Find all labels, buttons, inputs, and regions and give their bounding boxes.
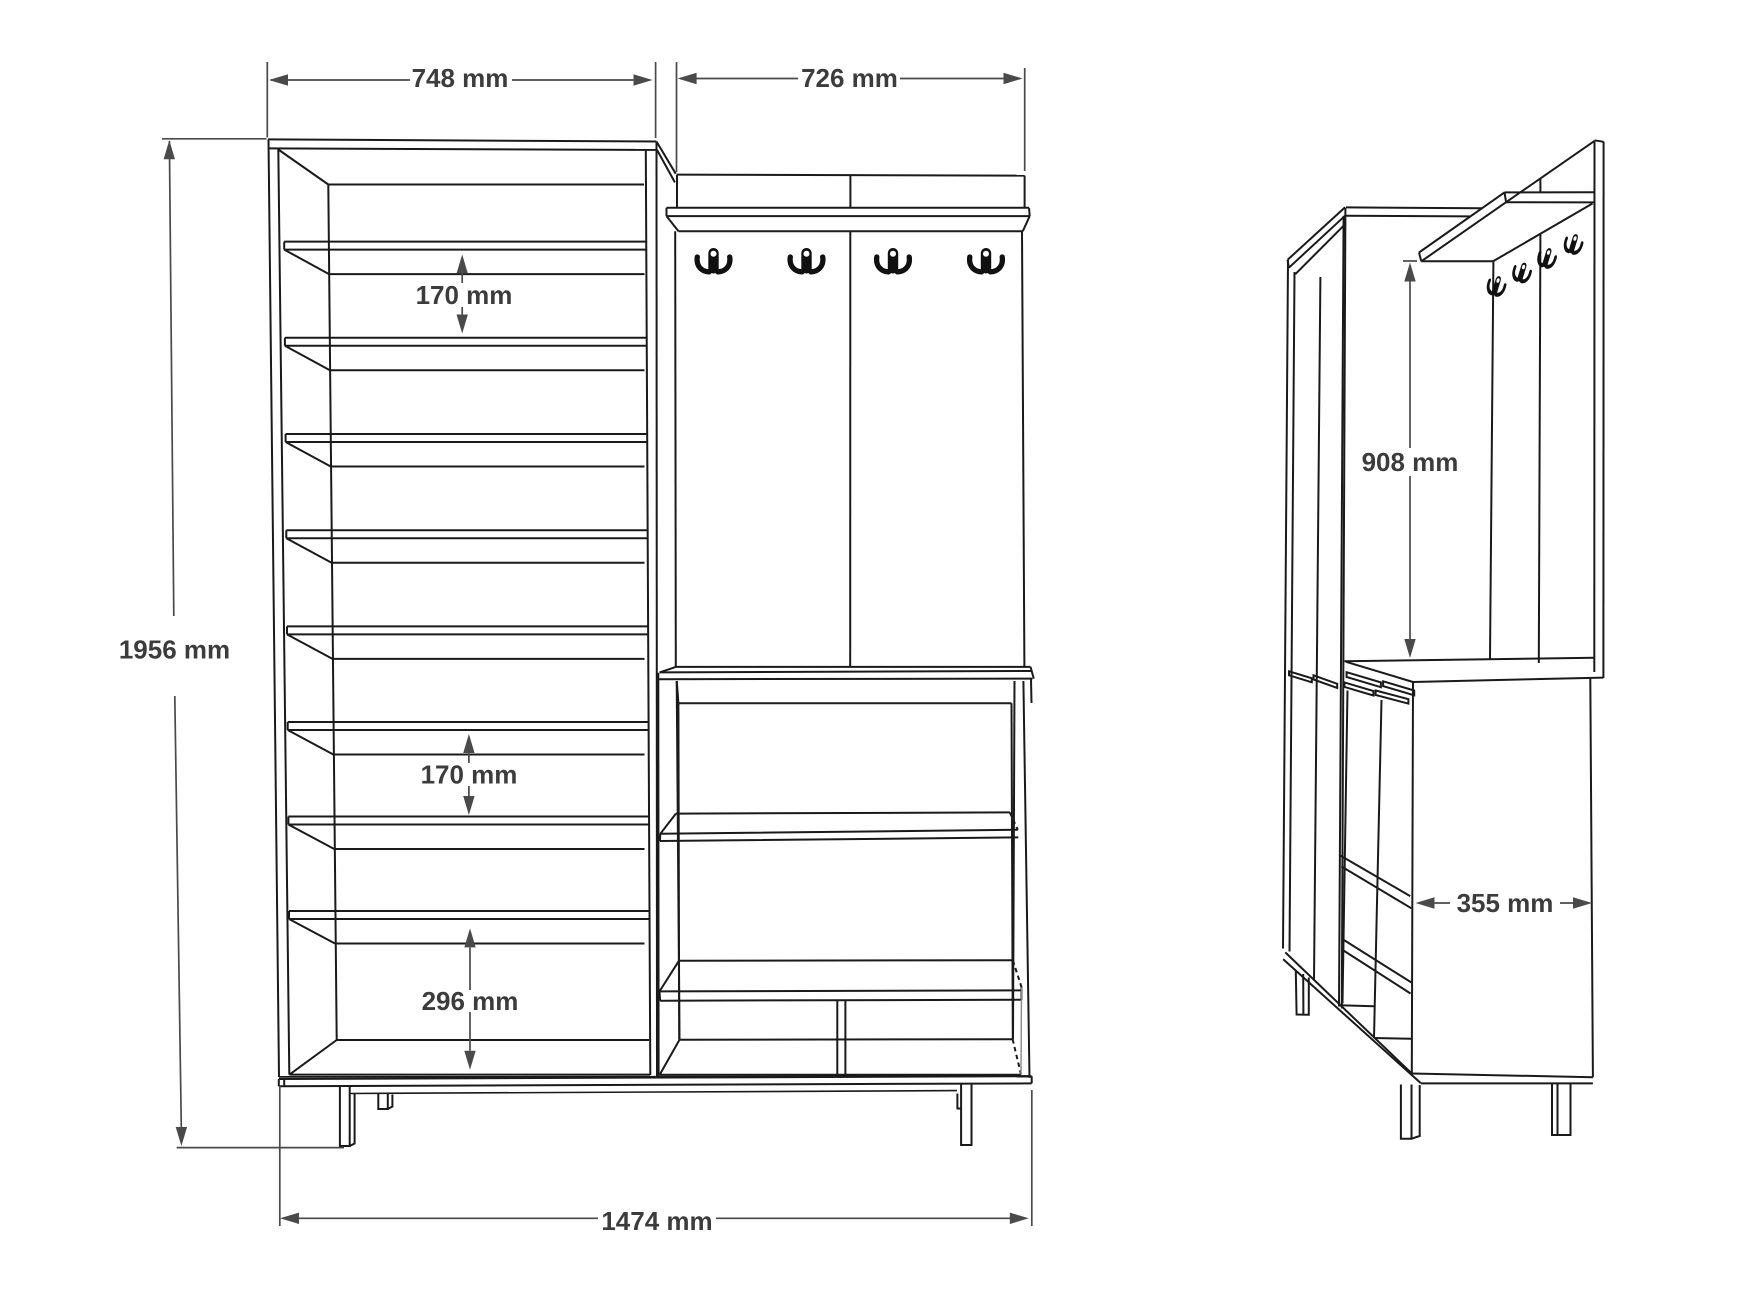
svg-text:170 mm: 170 mm: [416, 280, 513, 310]
svg-text:726 mm: 726 mm: [801, 63, 898, 93]
svg-text:296 mm: 296 mm: [422, 986, 519, 1016]
svg-text:1956 mm: 1956 mm: [119, 635, 230, 665]
svg-text:748 mm: 748 mm: [412, 63, 509, 93]
svg-text:170 mm: 170 mm: [421, 760, 518, 790]
svg-text:1474 mm: 1474 mm: [601, 1206, 712, 1236]
svg-text:908 mm: 908 mm: [1362, 447, 1459, 477]
svg-text:355 mm: 355 mm: [1457, 888, 1554, 918]
